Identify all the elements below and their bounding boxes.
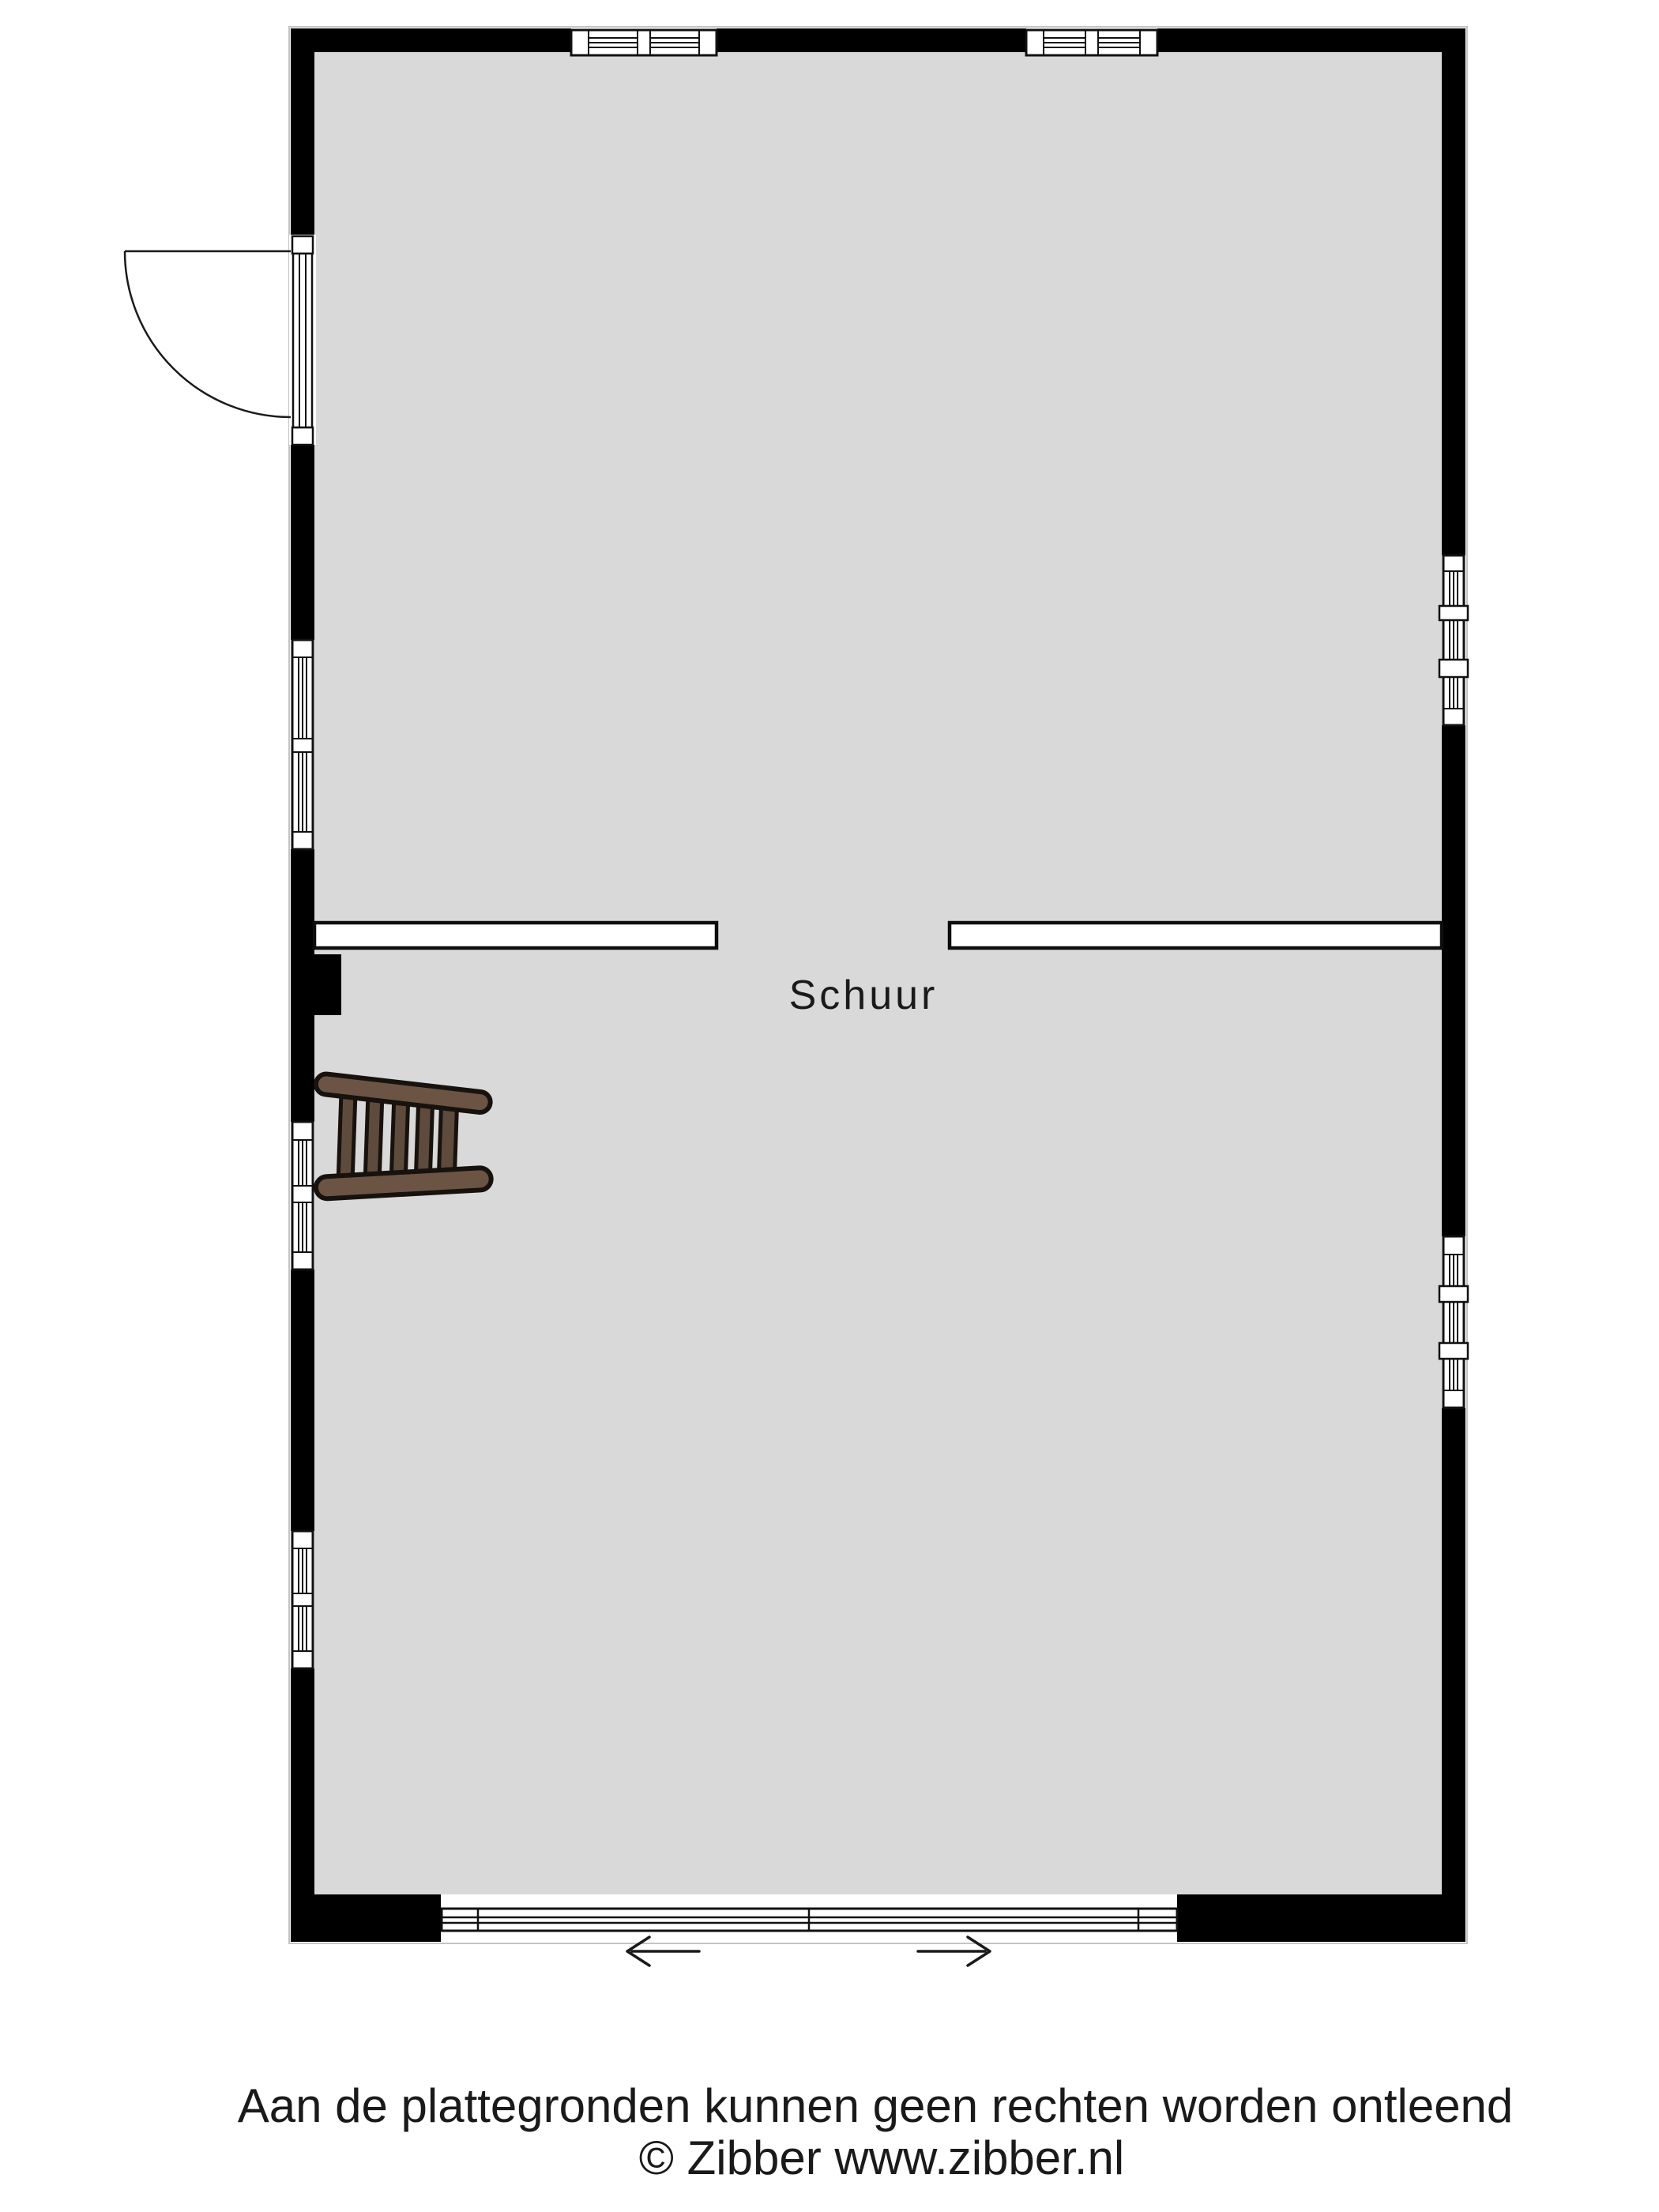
sliding-door (442, 1909, 1177, 1966)
window-left-3 (292, 1531, 313, 1668)
door-leaf (293, 254, 312, 427)
wall-right-segment (1442, 725, 1465, 1236)
wall-top-segment (717, 28, 1026, 52)
wall-right-segment (1442, 1408, 1465, 1942)
window-left-1 (292, 640, 313, 849)
entry-door (125, 235, 316, 445)
partition-beam-left (314, 923, 717, 948)
wall-bottom-segment (1177, 1894, 1465, 1942)
wall-top-segment (291, 28, 571, 52)
wall-left-segment (291, 445, 314, 640)
door-jamb-bottom (292, 427, 313, 445)
partition-beam-right (950, 923, 1442, 948)
footer-copyright: © Zibber www.zibber.nl (639, 2131, 1124, 2184)
wall-stub (314, 954, 341, 1015)
door-swing-arc-icon (125, 251, 291, 417)
footer-disclaimer: Aan de plattegronden kunnen geen rechten… (238, 2079, 1514, 2132)
wall-left-segment (291, 849, 314, 1122)
window-top-2 (1026, 30, 1157, 55)
wall-right-segment (1442, 28, 1465, 555)
wall-left-segment (291, 1668, 314, 1942)
arrow-right-icon (918, 1937, 990, 1966)
wall-left-segment (291, 28, 314, 235)
wall-top-segment (1157, 28, 1465, 52)
arrow-left-icon (627, 1937, 699, 1966)
window-left-2 (292, 1122, 313, 1270)
wall-left-segment (291, 1270, 314, 1531)
door-jamb-top (292, 236, 313, 254)
window-top-1 (571, 30, 717, 55)
window-right-2 (1439, 1236, 1468, 1408)
window-right-1 (1439, 555, 1468, 725)
room-label: Schuur (789, 972, 939, 1018)
floor-plan-canvas: Schuur Aan de plattegronden kunnen geen … (0, 0, 1659, 2212)
